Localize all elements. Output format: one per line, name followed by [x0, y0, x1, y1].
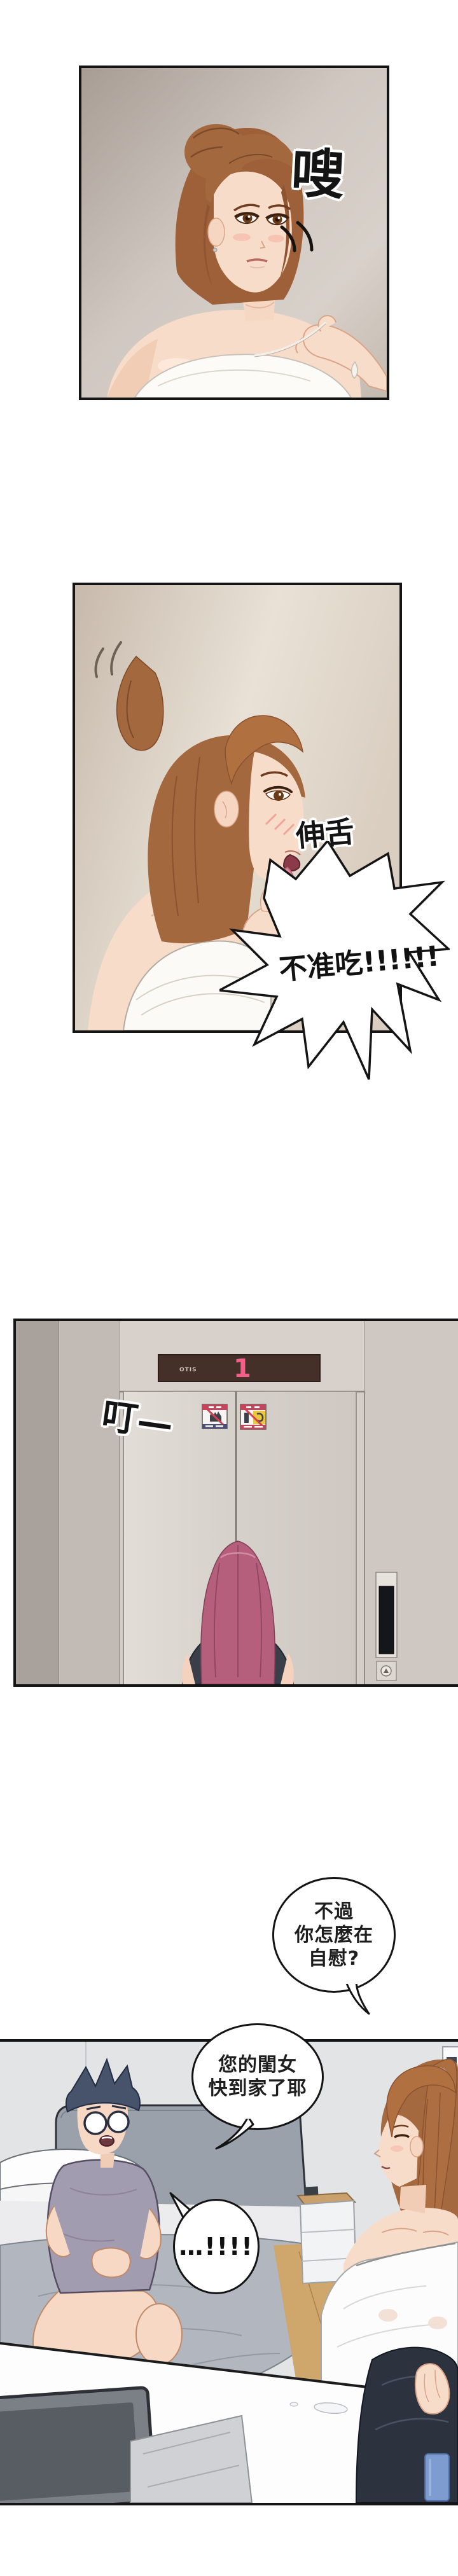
speech-line: 你怎麼在 [295, 1923, 373, 1947]
panel-3-illustration: OTIS 1 [16, 1321, 458, 1684]
shock-text: …!!!! [179, 2233, 253, 2261]
ear [410, 2136, 423, 2157]
speech-bubble-question-tail [338, 1981, 377, 2016]
jacket-and-hand [356, 2348, 458, 2503]
speech-bubble-daughter-tail [210, 2116, 256, 2151]
elevator-brand-label: OTIS [179, 1367, 197, 1373]
speech-line: 快到家了耶 [209, 2077, 307, 2100]
webtoon-page: 嗖 [0, 0, 458, 2576]
woman-head [176, 124, 304, 305]
sfx-ding: 叮— [100, 1398, 176, 1443]
warning-sticker-left [202, 1404, 227, 1429]
blue-cup [425, 2454, 449, 2501]
speech-bubble-question: 不過 你怎麼在 自慰? [272, 1877, 396, 1993]
glasses-lens [108, 2112, 128, 2132]
clasped-hands [92, 2248, 130, 2277]
speech-line: 自慰? [309, 1947, 359, 1970]
floor-indicator: OTIS 1 [158, 1354, 320, 1383]
panel-1-woman-looking-back [79, 66, 389, 400]
call-button-panel [376, 1572, 397, 1680]
floor-number-display: 1 [233, 1354, 251, 1383]
glasses-lens [85, 2112, 106, 2134]
warning-sticker-right [240, 1404, 266, 1429]
speech-bubble-daughter: 您的閨女 快到家了耶 [191, 2023, 324, 2130]
earring [213, 248, 217, 252]
panel-1-illustration [81, 68, 387, 398]
phone-on-nightstand [304, 2186, 319, 2195]
sfx-whoosh: 嗖 [290, 146, 346, 202]
speech-bubble-shock: …!!!! [173, 2199, 260, 2294]
panel-3-elevator: OTIS 1 [13, 1319, 458, 1687]
speech-line: 不過 [314, 1900, 354, 1923]
speech-line: 您的閨女 [218, 2053, 297, 2077]
